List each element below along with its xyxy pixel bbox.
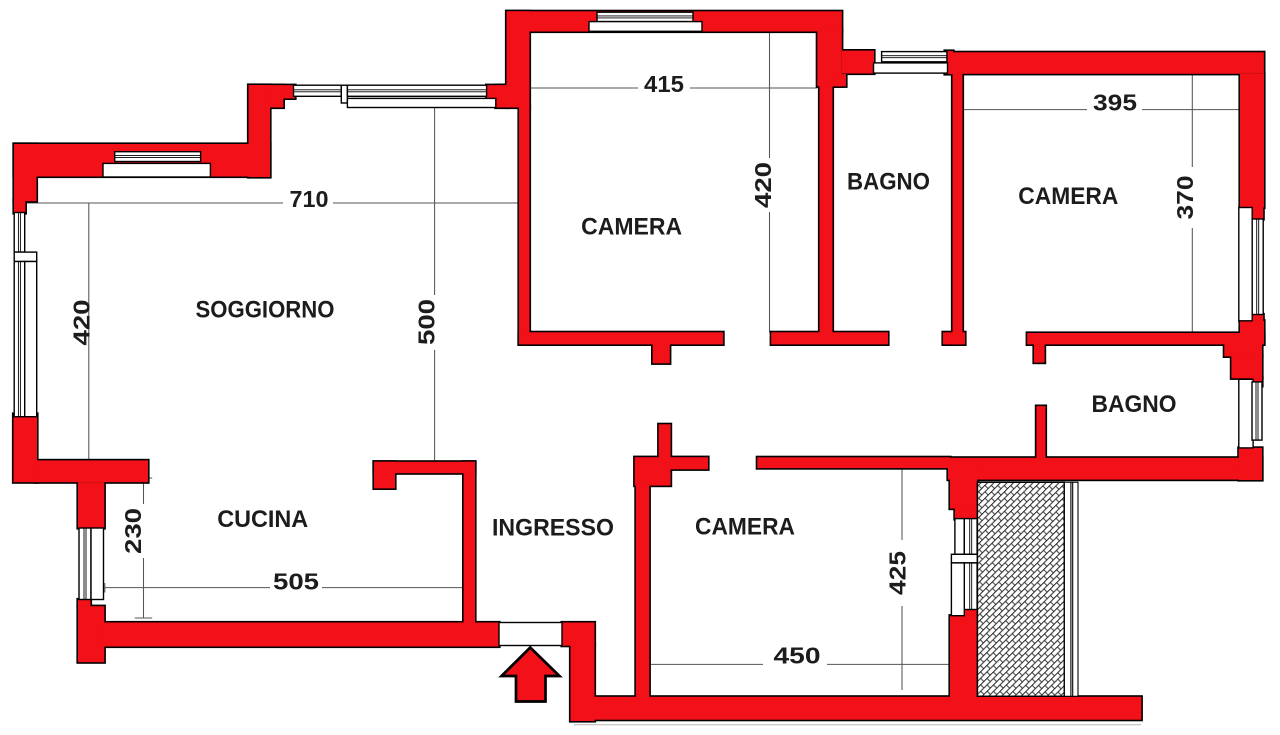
svg-text:500: 500 — [414, 299, 440, 345]
svg-text:425: 425 — [885, 551, 911, 595]
svg-text:INGRESSO: INGRESSO — [492, 515, 614, 542]
svg-text:SOGGIORNO: SOGGIORNO — [196, 297, 335, 324]
svg-text:420: 420 — [750, 162, 776, 208]
svg-text:CAMERA: CAMERA — [581, 214, 682, 241]
svg-text:BAGNO: BAGNO — [847, 169, 930, 196]
svg-text:395: 395 — [1093, 90, 1137, 116]
svg-text:370: 370 — [1172, 176, 1198, 220]
svg-text:415: 415 — [644, 71, 684, 97]
svg-text:420: 420 — [69, 300, 95, 346]
svg-text:CAMERA: CAMERA — [1018, 183, 1118, 210]
svg-text:230: 230 — [120, 508, 146, 554]
svg-text:450: 450 — [774, 643, 821, 669]
svg-text:710: 710 — [290, 186, 329, 212]
svg-text:CUCINA: CUCINA — [217, 506, 308, 533]
svg-text:CAMERA: CAMERA — [695, 514, 795, 541]
svg-text:505: 505 — [273, 569, 319, 595]
svg-text:BAGNO: BAGNO — [1092, 391, 1177, 418]
